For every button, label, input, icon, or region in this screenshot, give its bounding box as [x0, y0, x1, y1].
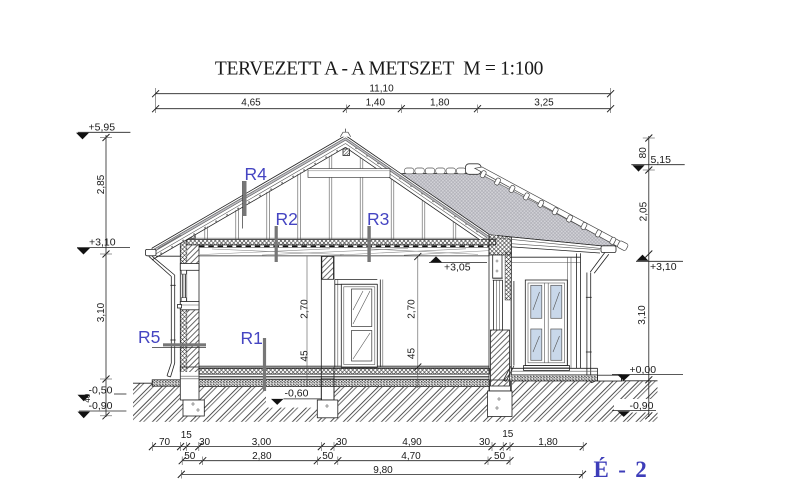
svg-text:2,70: 2,70 — [300, 299, 311, 319]
svg-text:5,15: 5,15 — [651, 154, 672, 166]
svg-text:4,70: 4,70 — [401, 451, 421, 462]
svg-text:30: 30 — [199, 437, 211, 448]
svg-text:2,85: 2,85 — [96, 174, 107, 194]
svg-text:9,80: 9,80 — [373, 465, 393, 476]
svg-text:+5,95: +5,95 — [89, 122, 116, 134]
svg-text:+3,10: +3,10 — [89, 237, 116, 249]
svg-text:11,10: 11,10 — [369, 84, 394, 95]
svg-text:1,80: 1,80 — [430, 98, 450, 109]
svg-text:1,40: 1,40 — [366, 98, 386, 109]
svg-text:50: 50 — [184, 451, 196, 462]
svg-text:É - 2: É - 2 — [594, 457, 649, 482]
svg-text:1,80: 1,80 — [538, 437, 558, 448]
svg-text:70: 70 — [159, 437, 171, 448]
svg-text:3,00: 3,00 — [252, 437, 272, 448]
svg-text:2,70: 2,70 — [407, 299, 418, 319]
svg-text:R1: R1 — [241, 328, 263, 348]
svg-text:45: 45 — [407, 348, 418, 360]
svg-text:4,90: 4,90 — [402, 437, 422, 448]
svg-text:R5: R5 — [138, 327, 160, 347]
svg-text:80: 80 — [638, 147, 649, 159]
svg-text:15: 15 — [502, 429, 514, 440]
svg-text:+3,10: +3,10 — [650, 261, 677, 273]
svg-text:3,10: 3,10 — [637, 305, 648, 325]
svg-text:30: 30 — [479, 437, 491, 448]
svg-text:30: 30 — [336, 437, 348, 448]
svg-text:3,25: 3,25 — [534, 98, 554, 109]
svg-text:TERVEZETT A - A METSZET M = 1: TERVEZETT A - A METSZET M = 1:100 — [215, 59, 543, 80]
svg-text:-0,50: -0,50 — [89, 384, 113, 396]
svg-text:50: 50 — [322, 451, 334, 462]
svg-text:-0,60: -0,60 — [285, 388, 309, 400]
svg-text:-0,90: -0,90 — [89, 400, 113, 412]
svg-text:R4: R4 — [245, 164, 268, 184]
svg-text:2,05: 2,05 — [639, 201, 650, 221]
svg-text:4,65: 4,65 — [241, 98, 261, 109]
svg-text:3,10: 3,10 — [96, 302, 107, 322]
svg-text:R2: R2 — [276, 209, 298, 229]
svg-text:50: 50 — [494, 451, 506, 462]
svg-text:2,80: 2,80 — [252, 451, 272, 462]
svg-text:15: 15 — [181, 430, 193, 441]
svg-text:+3,05: +3,05 — [444, 262, 471, 274]
svg-text:45: 45 — [300, 350, 311, 362]
